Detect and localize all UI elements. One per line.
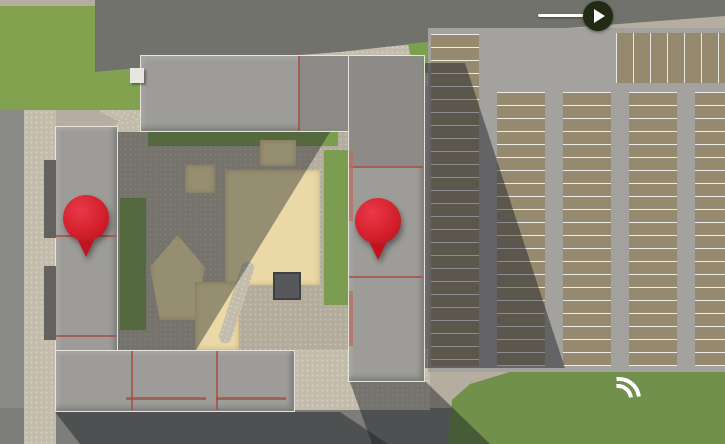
arrow-shaft (538, 14, 585, 17)
arrow-triangle (594, 9, 605, 23)
roof-divider (349, 166, 423, 168)
building-wing-south (55, 350, 295, 412)
watermark-logo (585, 392, 725, 444)
kiosk (130, 68, 144, 83)
parking-rows-topright (616, 33, 725, 83)
balcony-edge (216, 397, 286, 400)
roof-divider (349, 276, 423, 278)
parking-column-4 (629, 92, 677, 366)
pin-head (355, 198, 401, 244)
roof-divider (298, 56, 300, 131)
sidewalk-west (24, 80, 56, 444)
roof-lower-section-west (44, 160, 56, 238)
position-marker-2[interactable] (354, 198, 402, 260)
balcony-edge (349, 291, 353, 346)
courtyard (118, 132, 348, 350)
roof-divider (216, 351, 218, 410)
roof-divider (131, 351, 133, 410)
roof-lower-section-west (44, 266, 56, 340)
roof-divider (56, 335, 116, 337)
site-plan (0, 0, 725, 444)
position-marker-1[interactable] (62, 195, 110, 257)
shadow-south-wing (55, 412, 395, 444)
parking-column-3 (563, 92, 611, 366)
courtyard-grass-right (324, 150, 348, 305)
balcony-edge (126, 397, 206, 400)
roof-dark-section (349, 56, 423, 166)
road-left-vertical (0, 96, 24, 444)
street-sign (538, 1, 724, 37)
direction-arrow-icon (583, 1, 613, 31)
pin-head (63, 195, 109, 241)
balcony-edge (349, 151, 353, 221)
courtyard-structure-roof (273, 272, 301, 300)
parking-column-5 (695, 92, 725, 366)
